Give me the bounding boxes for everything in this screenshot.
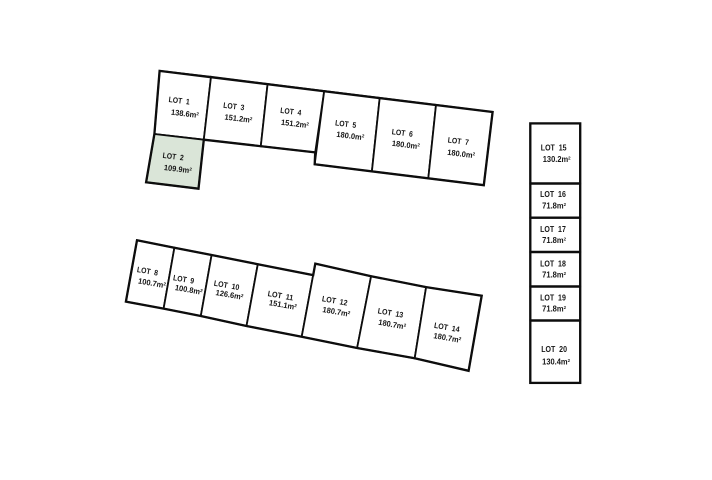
svg-text:LOT 18: LOT 18 [540, 259, 566, 268]
svg-text:130.4m2: 130.4m2 [542, 358, 570, 367]
svg-text:71.8m2: 71.8m2 [542, 201, 566, 210]
svg-text:LOT 17: LOT 17 [540, 225, 566, 234]
svg-text:71.8m2: 71.8m2 [542, 305, 566, 314]
svg-text:71.8m2: 71.8m2 [542, 271, 566, 280]
svg-text:130.2m2: 130.2m2 [543, 155, 571, 164]
svg-text:71.8m2: 71.8m2 [542, 236, 566, 245]
svg-text:LOT 20: LOT 20 [541, 345, 567, 354]
svg-text:LOT 15: LOT 15 [541, 144, 567, 153]
svg-text:LOT 16: LOT 16 [540, 190, 566, 199]
svg-text:LOT 19: LOT 19 [540, 293, 566, 302]
